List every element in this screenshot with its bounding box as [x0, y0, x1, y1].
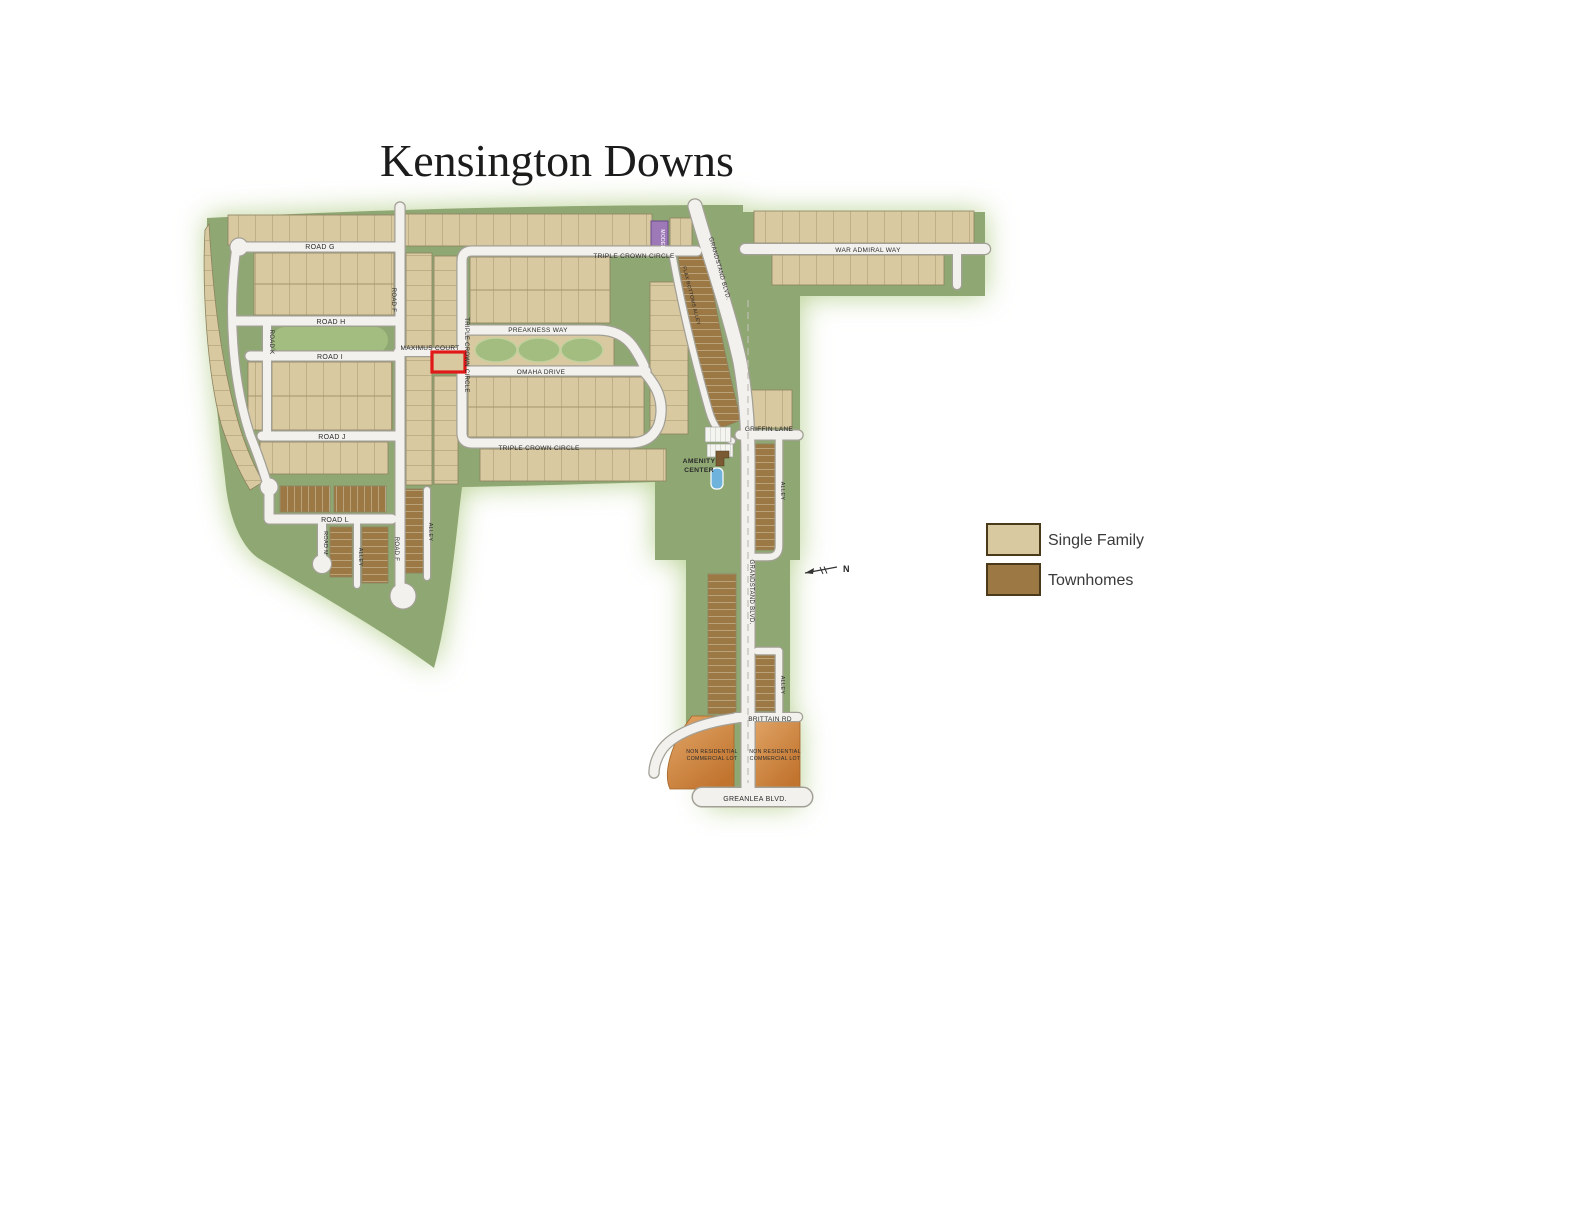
- site-plan-page: Kensington Downs: [0, 0, 1584, 1224]
- townhome-strip: [362, 527, 388, 583]
- north-label: N: [843, 564, 850, 574]
- townhome-strip: [330, 527, 352, 577]
- green-median: [272, 327, 388, 353]
- lot-block: [434, 376, 458, 484]
- page-title: Kensington Downs: [380, 135, 734, 186]
- road-label: ALLEY: [427, 523, 433, 542]
- road-label: TRIPLE CROWN CIRCLE: [593, 253, 675, 260]
- amenity-label: AMENITY: [683, 458, 716, 465]
- lot-block: [434, 256, 458, 348]
- north-arrow: N: [805, 564, 850, 574]
- road-label: ROAD G: [305, 244, 334, 251]
- legend: Single Family Townhomes: [987, 524, 1144, 595]
- road-label: OMAHA DRIVE: [517, 369, 566, 376]
- lot-block: [260, 442, 388, 474]
- road-label: MAXIMUS COURT: [400, 345, 459, 352]
- legend-label-townhomes: Townhomes: [1048, 572, 1133, 589]
- road-label: ROAD F: [390, 288, 396, 313]
- road-label: ROAD M: [322, 531, 328, 555]
- parking-lot: [705, 427, 731, 442]
- legend-swatch-townhomes: [987, 564, 1040, 595]
- road-label: ROAD I: [317, 354, 343, 361]
- road-label: BRITTAIN RD: [748, 716, 792, 723]
- cul-de-sac: [313, 555, 331, 573]
- lot-block: [670, 218, 692, 248]
- lot-blocks: [204, 211, 974, 789]
- legend-swatch-single-family: [987, 524, 1040, 555]
- site-plan-svg: Kensington Downs: [0, 0, 1584, 1224]
- amenity-label: CENTER: [684, 467, 714, 474]
- north-arrow-head: [805, 568, 814, 574]
- road-label: ROAD H: [316, 319, 345, 326]
- cul-de-sac: [261, 479, 278, 496]
- road-label: WAR ADMIRAL WAY: [835, 247, 901, 254]
- townhome-strip: [708, 574, 736, 714]
- lot-block: [772, 255, 944, 285]
- commercial-label: NON RESIDENTIAL: [749, 749, 800, 755]
- lot-block: [754, 211, 974, 243]
- road-label: PREAKNESS WAY: [508, 327, 568, 334]
- lot-block: [480, 449, 666, 481]
- lot-block: [750, 390, 792, 428]
- model-label: MODEL: [659, 229, 665, 248]
- landscape-oval: [475, 338, 517, 362]
- townhome-strip: [334, 486, 386, 512]
- road-label: TRIPLE CROWN CIRCLE: [463, 317, 469, 392]
- lot-block: [228, 215, 396, 245]
- cul-de-sac: [231, 239, 248, 256]
- commercial-label: COMMERCIAL LOT: [687, 756, 738, 762]
- road-label: TRIPLE CROWN CIRCLE: [498, 445, 580, 452]
- community-map: ROAD G ROAD H ROAD I ROAD J ROAD K ROAD …: [204, 205, 985, 806]
- road-label: ROAD F: [393, 537, 399, 562]
- road-label: ROAD K: [268, 330, 274, 355]
- road-label: ALLEY: [779, 482, 785, 501]
- lot-block: [406, 253, 432, 485]
- road-label: ALLEY: [779, 676, 785, 695]
- road-label: ROAD L: [321, 517, 349, 524]
- road-label: GRANDSTAND BLVD.: [748, 560, 754, 625]
- highlighted-lot[interactable]: [432, 352, 465, 372]
- legend-label-single-family: Single Family: [1048, 532, 1144, 549]
- road-label: ROAD J: [318, 434, 345, 441]
- townhome-strip: [280, 486, 330, 512]
- landscape-oval: [561, 338, 603, 362]
- north-arrow-fletch: [820, 567, 827, 575]
- commercial-label: NON RESIDENTIAL: [686, 749, 737, 755]
- road-label: GRIFFIN LANE: [745, 426, 794, 433]
- cul-de-sac: [391, 584, 416, 609]
- commercial-label: COMMERCIAL LOT: [750, 756, 801, 762]
- landscape-oval: [518, 338, 560, 362]
- road-label: GREANLEA BLVD.: [723, 796, 787, 803]
- road-label: ALLEY: [357, 548, 363, 567]
- townhome-strip: [753, 655, 777, 711]
- lot-block: [404, 214, 652, 246]
